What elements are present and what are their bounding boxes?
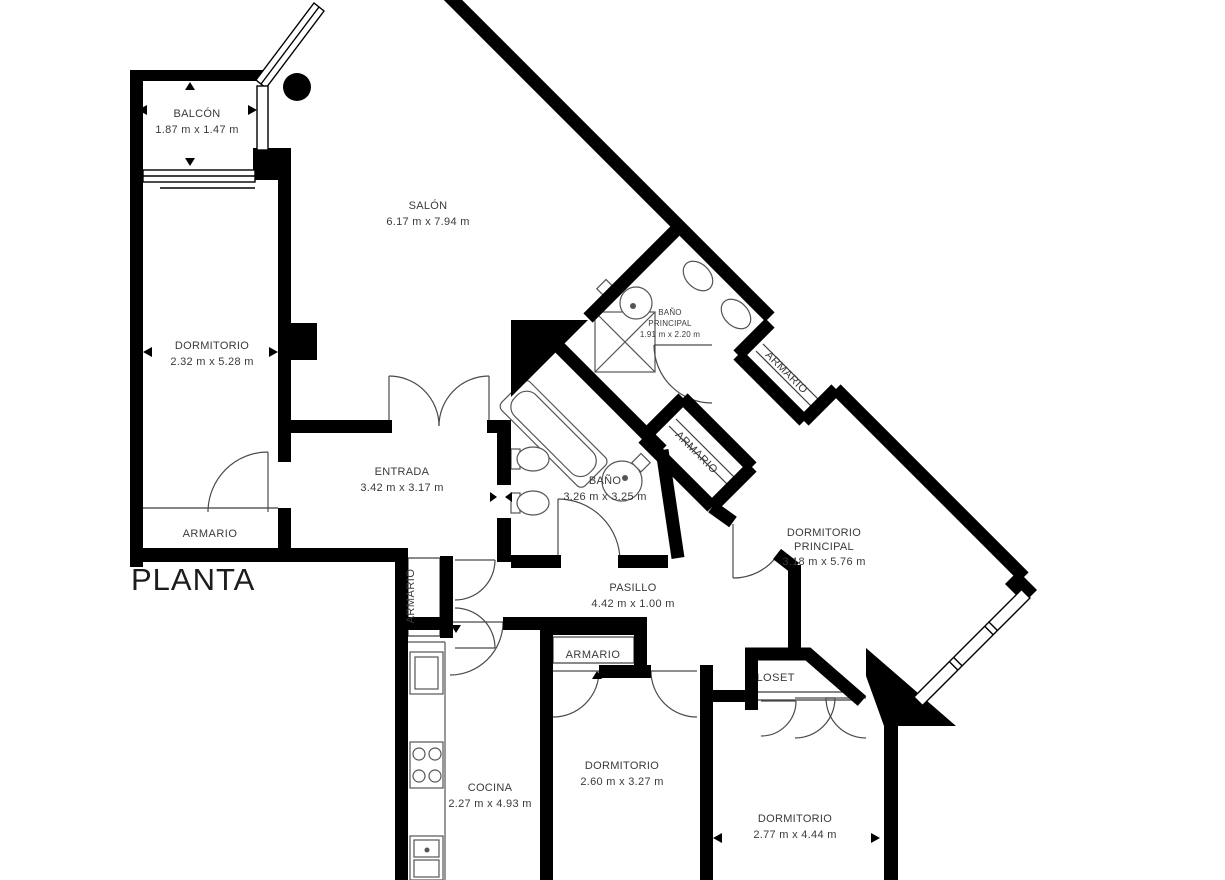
dimension-arrow: [269, 347, 278, 357]
label-balcon-dims: 1.87 m x 1.47 m: [155, 124, 238, 136]
door-arc: [558, 499, 620, 561]
window-icon: [143, 170, 255, 188]
label-bano-principal-line1: BAÑO: [658, 308, 681, 317]
dimension-arrow: [713, 833, 722, 843]
dimension-arrow: [185, 158, 195, 166]
label-balcon-name: BALCÓN: [173, 107, 220, 120]
door-arc: [455, 560, 495, 600]
label-dormitorio-principal-line1: DORMITORIO: [787, 527, 861, 539]
label-dormitorio-principal-dims: 3.18 m x 5.76 m: [782, 556, 865, 568]
door-arc: [439, 376, 489, 426]
page-title: PLANTA: [131, 562, 255, 597]
label-entrada-dims: 3.42 m x 3.17 m: [360, 482, 443, 494]
door-arc: [553, 671, 599, 717]
windows-layer: [143, 3, 1030, 705]
dimension-arrow: [871, 833, 880, 843]
door-arc: [654, 345, 712, 403]
pocket-door-marker: [490, 492, 497, 502]
closet-wall-patch: [745, 648, 758, 710]
label-dormitorio-3-dims: 2.77 m x 4.44 m: [753, 829, 836, 841]
label-armario-mid: ARMARIO: [566, 649, 621, 661]
door-arc: [208, 452, 268, 512]
bidet-icon: [511, 491, 549, 515]
label-bano-dims: 3.26 m x 3.25 m: [563, 491, 646, 503]
label-armario-vertical: ARMARIO: [405, 569, 417, 624]
shower-icon: [595, 312, 655, 372]
label-salon-name: SALÓN: [409, 199, 448, 212]
label-bano-principal-line2: PRINCIPAL: [648, 319, 692, 328]
door-arc: [455, 608, 495, 648]
toilet-icon: [511, 447, 549, 471]
window-icon: [914, 590, 1030, 706]
floor-plan-page: BALCÓN 1.87 m x 1.47 m SALÓN 6.17 m x 7.…: [0, 0, 1225, 880]
column-marker: [283, 73, 311, 101]
label-dormitorio-name: DORMITORIO: [175, 340, 249, 352]
label-dormitorio-principal-line2: PRINCIPAL: [794, 541, 854, 553]
door-arc: [651, 671, 697, 717]
label-armario-left: ARMARIO: [183, 528, 238, 540]
door-arc: [389, 376, 439, 426]
kitchen-counter: [408, 642, 445, 880]
window-icon: [257, 86, 268, 150]
dimension-arrow: [185, 82, 195, 90]
door-arc: [733, 556, 777, 578]
label-pasillo-name: PASILLO: [609, 582, 656, 594]
label-cocina-dims: 2.27 m x 4.93 m: [448, 798, 531, 810]
label-cocina-name: COCINA: [468, 782, 513, 794]
door-arc: [761, 701, 796, 736]
label-dormitorio-dims: 2.32 m x 5.28 m: [170, 356, 253, 368]
label-entrada-name: ENTRADA: [375, 466, 430, 478]
label-dormitorio-2-name: DORMITORIO: [585, 760, 659, 772]
dimension-arrow: [248, 105, 257, 115]
dimension-arrow: [143, 347, 152, 357]
label-dormitorio-2-dims: 2.60 m x 3.27 m: [580, 776, 663, 788]
door-arc: [826, 698, 866, 738]
floor-plan: BALCÓN 1.87 m x 1.47 m SALÓN 6.17 m x 7.…: [0, 0, 1225, 880]
kitchen-sink-icon: [410, 836, 443, 880]
label-dormitorio-3-name: DORMITORIO: [758, 813, 832, 825]
label-bano-name: BAÑO: [589, 474, 622, 487]
stove-icon: [410, 742, 443, 788]
label-pasillo-dims: 4.42 m x 1.00 m: [591, 598, 674, 610]
door-arc: [795, 698, 835, 738]
label-bano-principal-dims: 1.91 m x 2.20 m: [640, 330, 700, 339]
label-salon-dims: 6.17 m x 7.94 m: [386, 216, 469, 228]
pocket-door-marker: [505, 492, 512, 502]
bathtub-icon: [498, 378, 610, 490]
